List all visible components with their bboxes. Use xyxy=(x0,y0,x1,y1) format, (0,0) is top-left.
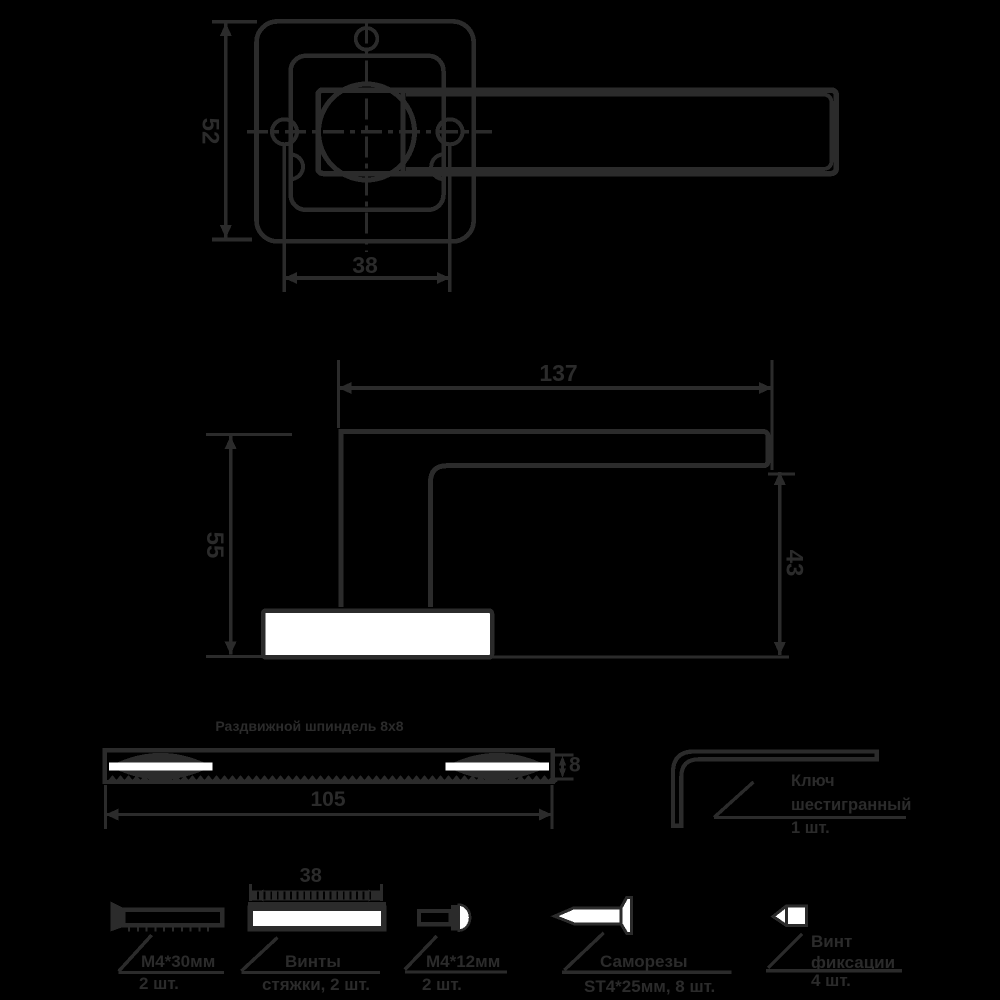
svg-text:Винт: Винт xyxy=(811,932,852,951)
svg-text:M4*30мм: M4*30мм xyxy=(141,952,215,971)
svg-text:2 шт.: 2 шт. xyxy=(422,975,462,994)
svg-text:Ключ: Ключ xyxy=(791,772,835,790)
svg-text:стяжки, 2 шт.: стяжки, 2 шт. xyxy=(262,975,370,994)
svg-text:52: 52 xyxy=(197,118,224,145)
svg-text:43: 43 xyxy=(781,550,808,577)
svg-text:ST4*25мм, 8 шт.: ST4*25мм, 8 шт. xyxy=(584,977,715,996)
svg-text:137: 137 xyxy=(539,360,577,386)
svg-text:M4*12мм: M4*12мм xyxy=(426,952,500,971)
svg-text:105: 105 xyxy=(310,788,345,811)
svg-text:1 шт.: 1 шт. xyxy=(791,819,830,837)
svg-text:8: 8 xyxy=(569,754,581,777)
svg-text:фиксации: фиксации xyxy=(811,953,895,972)
svg-text:Саморезы: Саморезы xyxy=(600,952,687,971)
svg-text:4 шт.: 4 шт. xyxy=(811,971,851,990)
svg-text:2 шт.: 2 шт. xyxy=(139,974,179,993)
svg-text:шестигранный: шестигранный xyxy=(791,796,911,814)
svg-text:Винты: Винты xyxy=(285,952,341,971)
svg-text:Раздвижной шпиндель 8x8: Раздвижной шпиндель 8x8 xyxy=(215,718,403,734)
svg-text:55: 55 xyxy=(201,532,228,559)
svg-text:38: 38 xyxy=(352,252,378,278)
svg-text:38: 38 xyxy=(300,865,322,887)
